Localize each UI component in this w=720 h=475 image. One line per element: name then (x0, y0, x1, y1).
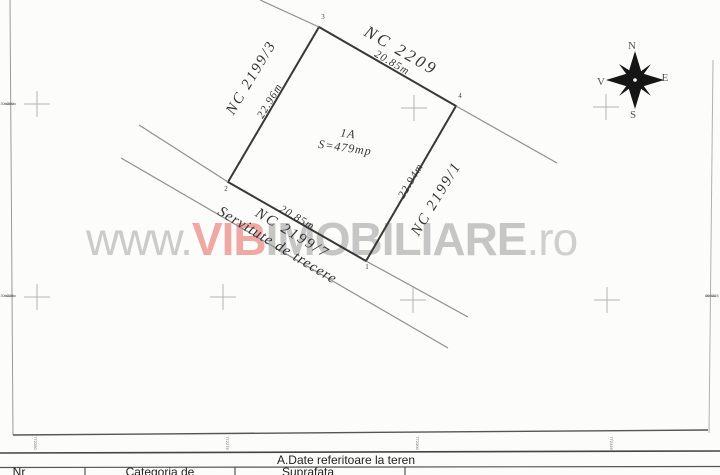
border-left (10, 0, 13, 435)
vertex-label-1: 1 (365, 263, 369, 271)
compass-west-label: V (597, 76, 605, 88)
grid-cross (594, 287, 620, 313)
compass-south-label: S (630, 109, 636, 121)
boundary-extension-topleft (260, 0, 319, 27)
vertex-label-4: 4 (458, 92, 462, 100)
vertex-label-2: 2 (224, 185, 228, 193)
border-right (709, 60, 713, 433)
compass-east-label: E (662, 72, 669, 84)
column-header-suprafata: Suprafata (282, 465, 334, 475)
grid-tick-right: 304225 (705, 294, 718, 299)
cadastral-plan-page: www.VIBIMOBILIARE.ro (0, 0, 720, 475)
column-header-categoria: Categoria de (126, 465, 195, 475)
vertex-label-3: 3 (321, 13, 325, 21)
grid-cross (24, 91, 50, 117)
grid-tick-left-bottom: 304225 (0, 294, 13, 299)
grid-cross (24, 284, 50, 310)
easement-upper-line-left (139, 125, 228, 182)
boundary-extension-right (456, 106, 557, 163)
compass-north-label: N (628, 40, 636, 52)
column-header-nr: Nr (13, 465, 26, 475)
grid-tick-left-top: 304250 (0, 102, 13, 107)
grid-cross (400, 287, 426, 313)
survey-linework (0, 0, 720, 475)
grid-tick-bottom-1: 772250 (33, 436, 38, 449)
grid-tick-bottom-2: 772275 (225, 436, 230, 449)
grid-cross (210, 284, 236, 310)
compass-rose (606, 51, 664, 109)
grid-cross (593, 94, 619, 120)
grid-cross (401, 95, 427, 121)
grid-tick-bottom-3: 772300 (415, 436, 420, 449)
grid-tick-bottom-4: 772325 (609, 436, 614, 449)
border-bottom (13, 430, 708, 435)
border-tick-dashes (4, 104, 716, 296)
